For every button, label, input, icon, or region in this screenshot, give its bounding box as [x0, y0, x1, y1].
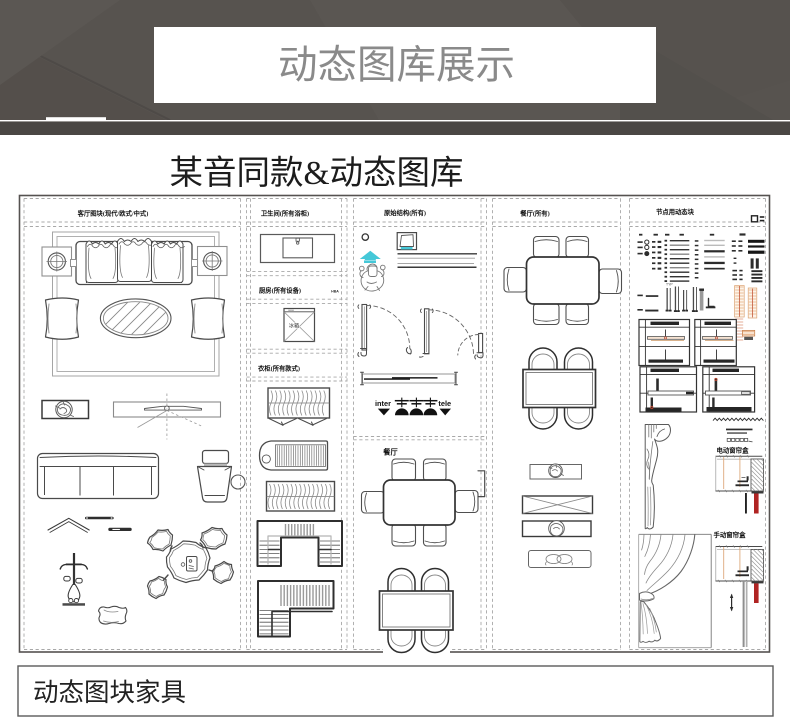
- svg-text:卫生间(所有浴柜): 卫生间(所有浴柜): [261, 209, 309, 218]
- svg-text:某音同款&动态图库: 某音同款&动态图库: [169, 155, 463, 192]
- svg-text:厨房(所有设备): 厨房(所有设备): [259, 286, 301, 295]
- svg-text:动态图块家具: 动态图块家具: [33, 678, 186, 707]
- svg-text:inter: inter: [375, 399, 391, 408]
- svg-text:电动窗帘盒: 电动窗帘盒: [717, 446, 750, 455]
- svg-text:原始结构(所有): 原始结构(所有): [384, 208, 426, 217]
- svg-text:餐厅: 餐厅: [382, 448, 397, 457]
- svg-text:aaaa: aaaa: [288, 309, 294, 312]
- svg-text:tele: tele: [438, 399, 451, 408]
- svg-text:TYP: TYP: [666, 282, 673, 286]
- svg-text:客厅图块(现代/欧式/中式): 客厅图块(现代/欧式/中式): [78, 209, 149, 218]
- svg-text:HBA: HBA: [331, 290, 339, 294]
- svg-text:动态图库展示: 动态图库展示: [278, 44, 515, 88]
- svg-text:手动窗帘盒: 手动窗帘盒: [714, 530, 747, 539]
- svg-text:衣柜(所有款式): 衣柜(所有款式): [258, 364, 300, 373]
- svg-text:节点用动态块: 节点用动态块: [656, 207, 694, 216]
- svg-text:冰箱: 冰箱: [289, 322, 299, 330]
- svg-text:餐厅(所有): 餐厅(所有): [520, 209, 549, 218]
